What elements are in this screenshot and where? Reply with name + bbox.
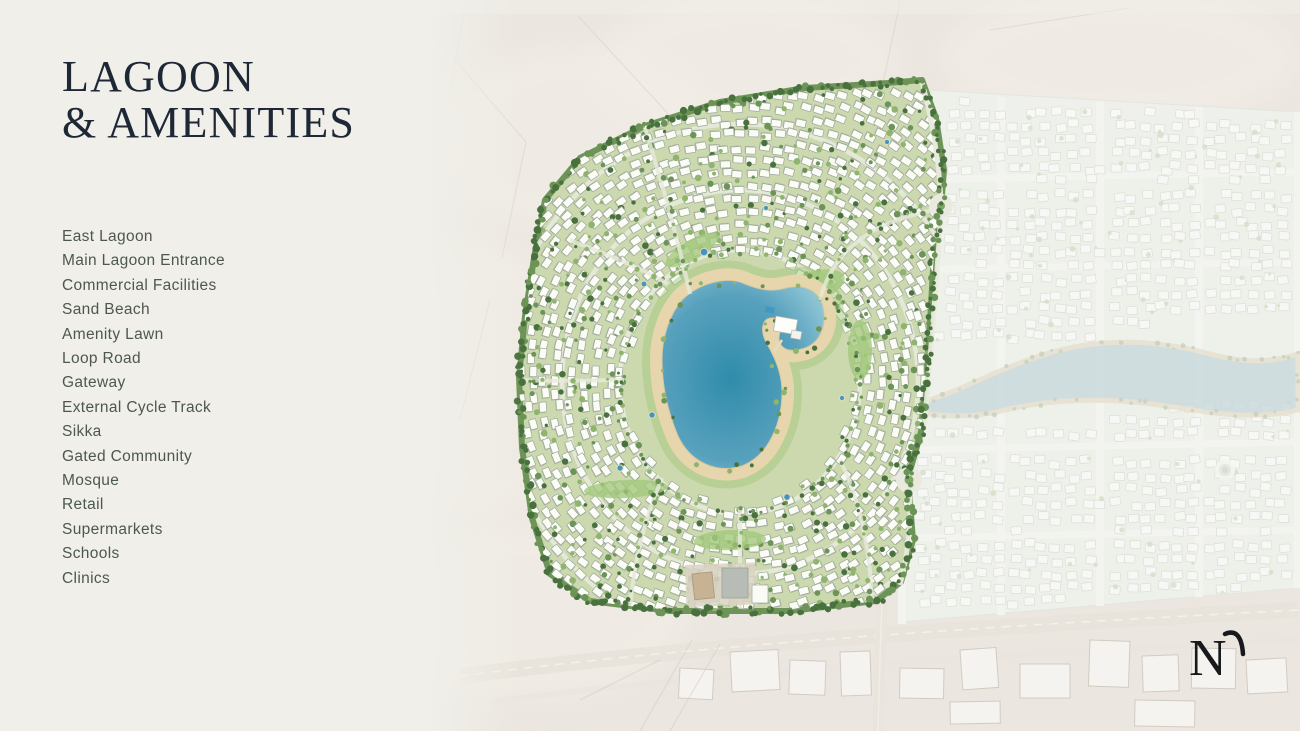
legend-item-mosque: Mosque	[62, 469, 432, 493]
brand-logo: N	[1183, 613, 1273, 698]
amenities-list: East Lagoon Main Lagoon Entrance Commerc…	[62, 225, 432, 591]
future-phase-district	[902, 90, 1300, 624]
legend-item-main-lagoon-entrance: Main Lagoon Entrance	[62, 249, 432, 273]
legend-item-gated-community: Gated Community	[62, 445, 432, 469]
legend-item-supermarkets: Supermarkets	[62, 518, 432, 542]
masterplan-map-container	[430, 0, 1300, 731]
north-letter: N	[1189, 630, 1227, 687]
legend-item-loop-road: Loop Road	[62, 347, 432, 371]
legend-item-sikka: Sikka	[62, 420, 432, 444]
panel-map-blend	[430, 0, 520, 731]
page-title-line1: LAGOON	[62, 54, 432, 100]
legend-item-external-cycle-track: External Cycle Track	[62, 396, 432, 420]
developed-district	[502, 76, 978, 640]
legend-item-east-lagoon: East Lagoon	[62, 225, 432, 249]
page-title-line2: & AMENITIES	[62, 100, 432, 146]
legend-item-commercial-facilities: Commercial Facilities	[62, 274, 432, 298]
page-title: LAGOON & AMENITIES	[62, 54, 432, 146]
amenities-legend: East Lagoon Main Lagoon Entrance Commerc…	[62, 225, 432, 591]
legend-item-schools: Schools	[62, 542, 432, 566]
legend-item-amenity-lawn: Amenity Lawn	[62, 323, 432, 347]
legend-item-clinics: Clinics	[62, 567, 432, 591]
legend-item-retail: Retail	[62, 493, 432, 517]
legend-item-gateway: Gateway	[62, 371, 432, 395]
logo-corner-mark-icon	[1225, 633, 1243, 654]
legend-item-sand-beach: Sand Beach	[62, 298, 432, 322]
left-panel: LAGOON & AMENITIES East Lagoon Main Lago…	[62, 0, 432, 146]
masterplan-map	[430, 0, 1300, 731]
